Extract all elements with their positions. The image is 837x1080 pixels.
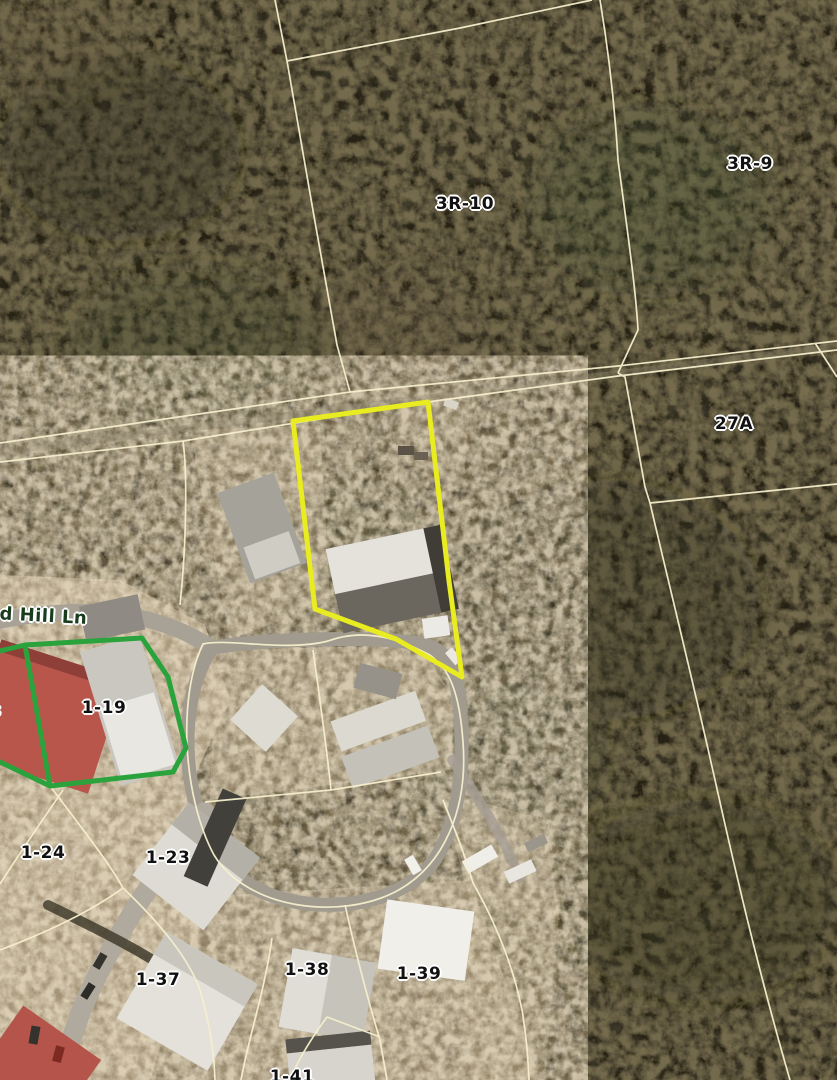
- map-canvas[interactable]: [0, 0, 837, 1080]
- map-viewport[interactable]: 3R-103R-927A1-1981-241-231-371-381-391-4…: [0, 0, 837, 1080]
- white-container: [422, 615, 451, 638]
- house-1-38: [279, 948, 377, 1042]
- roof-1-39: [378, 899, 475, 981]
